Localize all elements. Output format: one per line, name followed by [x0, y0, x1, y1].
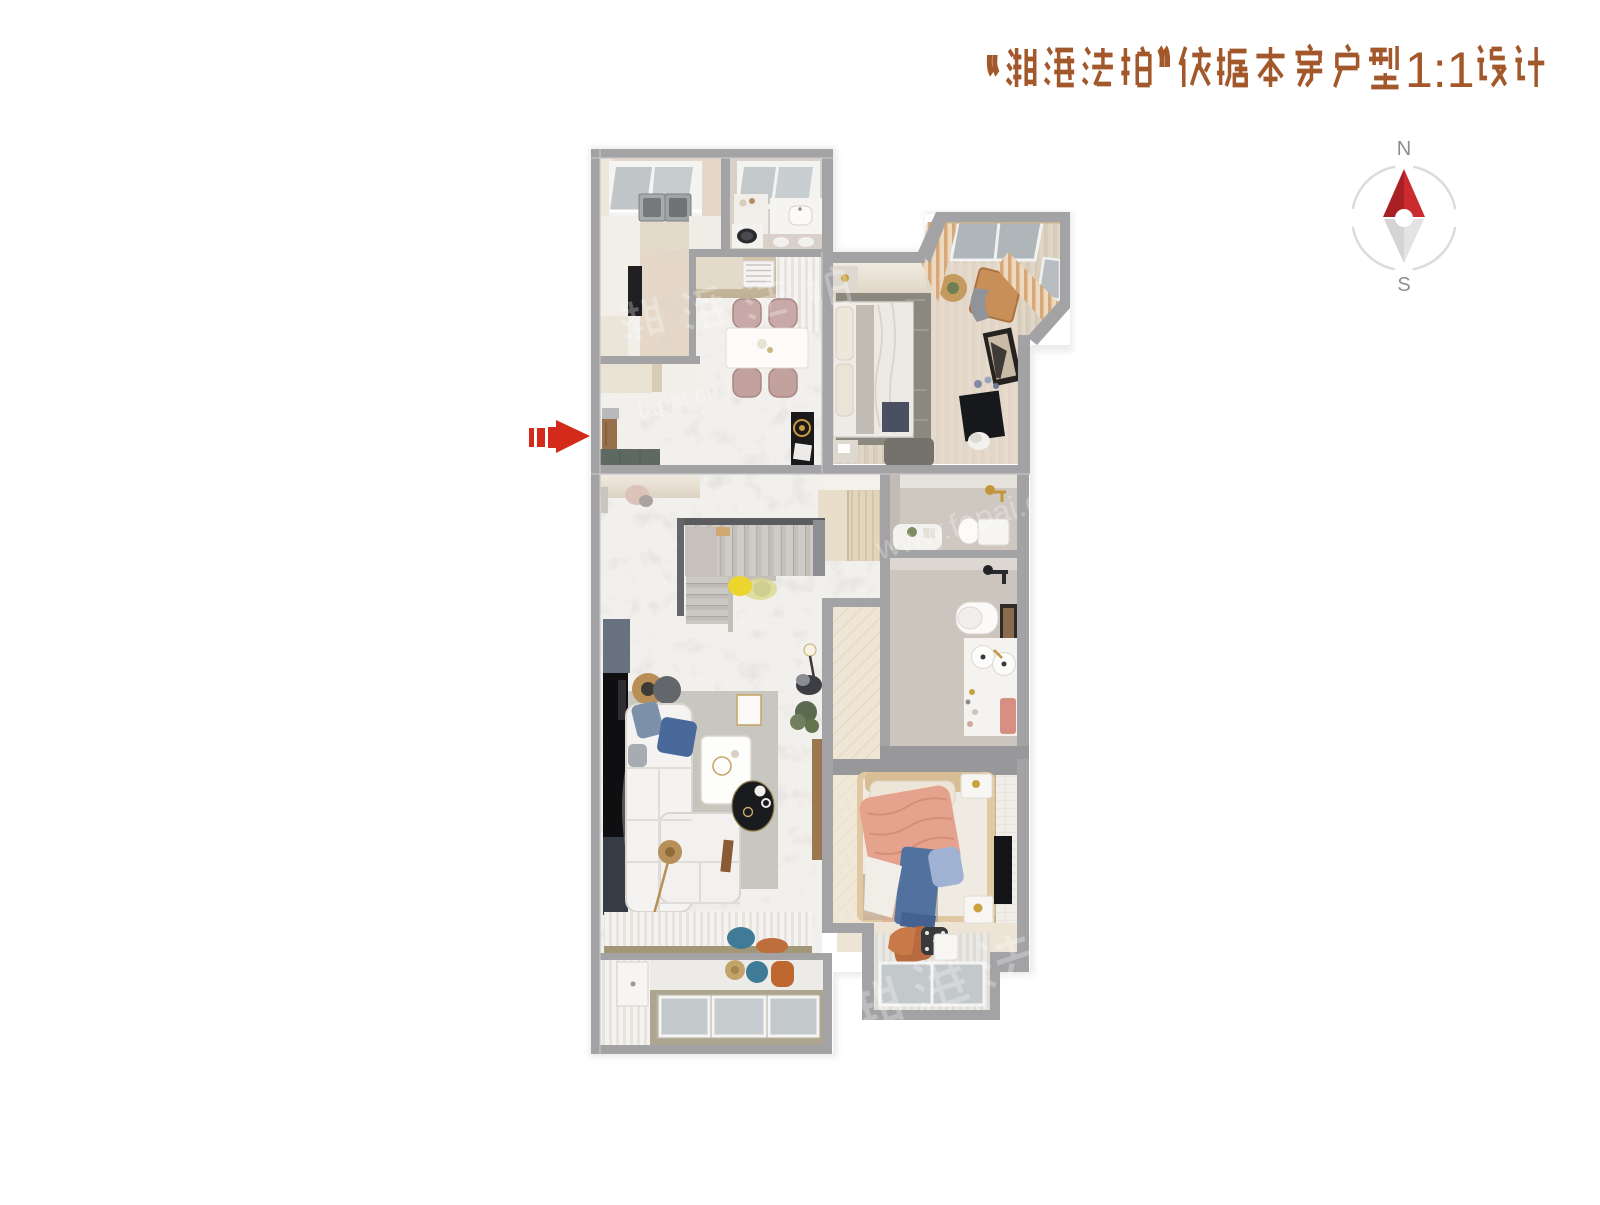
svg-text:S: S	[1397, 274, 1410, 296]
svg-text:N: N	[1397, 138, 1411, 160]
svg-text:1:1: 1:1	[1405, 42, 1475, 98]
